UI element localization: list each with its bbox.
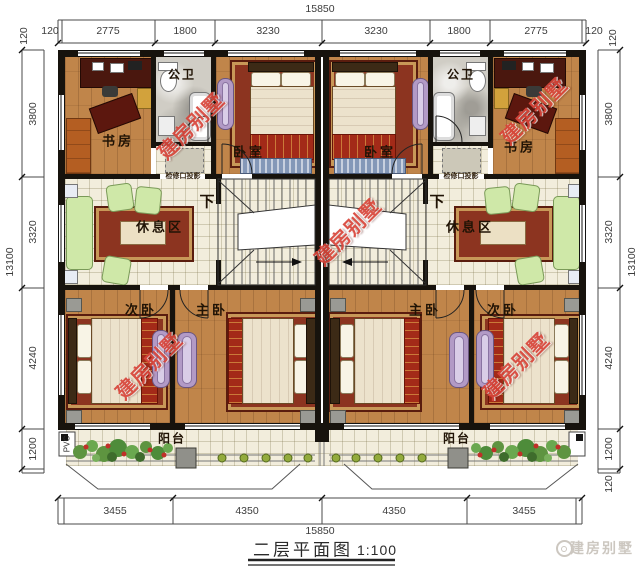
pillow [77, 360, 92, 394]
nightstand [564, 298, 580, 312]
headboard [68, 318, 77, 404]
pillow [77, 324, 92, 358]
nightstand [564, 410, 580, 424]
stair-wall-stub [423, 260, 428, 285]
wall-bath-hall-right [433, 142, 488, 146]
window [58, 95, 65, 150]
dim-right-seg: 3320 [603, 220, 615, 243]
door-opening [392, 174, 422, 179]
door-opening [476, 285, 504, 290]
window [164, 50, 204, 57]
bed-blanket [404, 318, 420, 404]
dim-right-seg: 1200 [603, 437, 615, 460]
room-label-bathroom-left: 公卫 [168, 66, 196, 83]
inspection-opening-box [442, 148, 481, 173]
nightstand [66, 410, 82, 424]
dim-top-seg: 1800 [173, 25, 196, 37]
armchair [101, 255, 132, 286]
dim-top-seg: 120 [41, 25, 59, 37]
inspection-opening-note-left: 检修口投影 [166, 171, 201, 181]
room-label-rest-area-left: 休息区 [136, 217, 184, 236]
door-opening [140, 285, 168, 290]
nightstand [330, 410, 346, 424]
window [58, 205, 65, 262]
dim-bottom-seg: 4350 [235, 505, 258, 517]
floor-plan-canvas: 书房 书房 公卫 公卫 卧室 卧室 休息区 休息区 下 下 次卧 主卧 主卧 次… [0, 0, 640, 573]
balcony-door [185, 423, 300, 430]
headboard [248, 62, 314, 72]
side-table [64, 270, 78, 284]
door-opening [436, 285, 464, 290]
nightstand [300, 410, 316, 424]
room-label-secondary-bedroom-right: 次卧 [487, 300, 519, 319]
pillow [554, 324, 569, 358]
dim-top-total: 15850 [305, 3, 334, 15]
drawing-title: 二层平面图 [253, 536, 353, 561]
armchair [105, 182, 135, 212]
stairs-down-label-right: 下 [429, 191, 444, 212]
cabinet [137, 88, 152, 109]
bed [250, 86, 314, 136]
balcony-divider-stub [315, 430, 329, 442]
window [58, 315, 65, 395]
room-label-master-bedroom-right: 主卧 [409, 300, 441, 319]
laptop [502, 61, 516, 70]
nightstand [66, 298, 82, 312]
dim-corner-top-left: 120 [18, 27, 30, 45]
washbasin [469, 116, 486, 136]
headboard [330, 318, 340, 404]
dim-bottom-seg: 3455 [103, 505, 126, 517]
window [78, 50, 140, 57]
stairs-down-label-left: 下 [199, 191, 214, 212]
stair-wall-stub [423, 179, 428, 204]
sofa [553, 196, 580, 270]
desk-papers [110, 63, 124, 73]
cabinet [494, 88, 509, 109]
door-opening [222, 174, 252, 179]
door-opening [180, 285, 208, 290]
dim-left-seg: 4240 [27, 346, 39, 369]
desk-papers [92, 62, 104, 71]
dim-corner-bottom-right: 120 [603, 475, 615, 493]
window [504, 50, 566, 57]
window [579, 95, 586, 150]
window [490, 423, 565, 430]
dim-right-total: 13100 [626, 247, 638, 276]
pillow [340, 360, 354, 394]
room-label-study-left: 书房 [102, 131, 134, 150]
armchair [484, 186, 513, 216]
dim-right-seg: 3800 [603, 102, 615, 125]
bed [354, 318, 406, 404]
pillow [365, 72, 395, 87]
dim-bottom-seg: 3455 [512, 505, 535, 517]
room-label-balcony-left: 阳台 [158, 430, 186, 447]
window [340, 50, 416, 57]
door-opening [151, 148, 156, 174]
side-sofa [66, 118, 91, 174]
room-label-rest-area-right: 休息区 [446, 217, 494, 236]
armchair [514, 255, 545, 286]
desk-papers [522, 62, 534, 71]
laptop [128, 61, 142, 70]
pillow [251, 72, 281, 87]
dim-right-seg: 4240 [603, 346, 615, 369]
dim-left-total: 13100 [4, 247, 16, 276]
brand-logo-text: 建房别墅 [570, 538, 634, 558]
sofa [66, 196, 93, 270]
armchair [511, 182, 541, 212]
balcony-door [344, 423, 459, 430]
pillow [340, 324, 354, 358]
dim-top-seg: 3230 [364, 25, 387, 37]
window [228, 50, 304, 57]
inspection-opening-note-right: 检修口投影 [444, 171, 479, 181]
dim-bottom-seg: 4350 [382, 505, 405, 517]
dim-top-seg: 1800 [447, 25, 470, 37]
door-opening [488, 148, 493, 174]
pillow [281, 72, 311, 87]
bed [332, 86, 396, 136]
pillow [554, 360, 569, 394]
side-sofa [555, 118, 580, 174]
drawing-scale: 1:100 [357, 542, 397, 558]
wardrobe [412, 78, 429, 130]
room-label-bedroom-left: 卧室 [233, 142, 265, 161]
room-label-secondary-bedroom-left: 次卧 [125, 300, 157, 319]
dim-corner-top-right: 120 [607, 29, 619, 47]
window [579, 205, 586, 262]
headboard [332, 62, 398, 72]
dim-top-seg: 3230 [256, 25, 279, 37]
window [440, 50, 480, 57]
dim-left-seg: 3320 [27, 220, 39, 243]
stair-wall-stub [216, 179, 221, 204]
dim-left-seg: 1200 [27, 437, 39, 460]
dim-left-seg: 3800 [27, 102, 39, 125]
dim-top-seg: 2775 [524, 25, 547, 37]
desk-chair [102, 86, 118, 97]
dim-top-seg: 120 [585, 25, 603, 37]
nightstand [300, 298, 316, 312]
room-label-balcony-right: 阳台 [443, 430, 471, 447]
armchair [134, 186, 163, 216]
pvc-pipe-label: PVC [63, 436, 72, 452]
wall-bath-bedroom-right [428, 57, 433, 179]
window [579, 315, 586, 395]
nightstand [330, 298, 346, 312]
bathtub [433, 92, 455, 141]
pillow [335, 72, 365, 87]
room-label-bedroom-right: 卧室 [364, 142, 396, 161]
headboard [569, 318, 578, 404]
room-label-master-bedroom-left: 主卧 [196, 300, 228, 319]
stair-wall-stub [216, 260, 221, 285]
wall-secondary-master-right [469, 290, 474, 423]
bed [242, 318, 294, 404]
wardrobe [449, 332, 469, 388]
side-table [64, 184, 78, 198]
dim-top-seg: 2775 [96, 25, 119, 37]
room-label-bathroom-right: 公卫 [447, 66, 475, 83]
window [75, 423, 150, 430]
